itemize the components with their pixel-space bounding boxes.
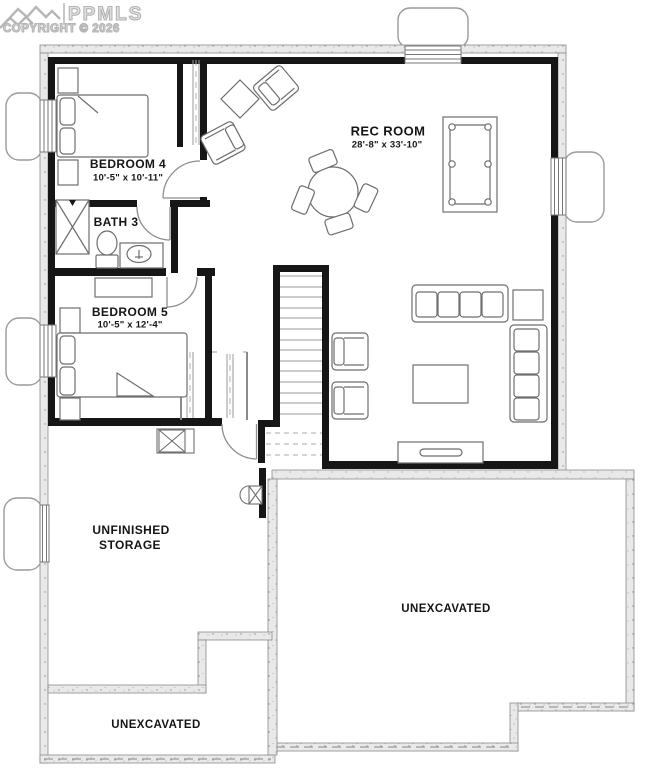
window-well — [398, 8, 468, 48]
window-well — [4, 498, 42, 570]
nightstand — [60, 398, 80, 420]
door-bedroom5 — [167, 277, 197, 308]
bedroom4-dims: 10'-5" x 10'-11" — [93, 173, 163, 184]
unexcavated-bottom-label: UNEXCAVATED — [111, 719, 200, 731]
bedroom5-label: BEDROOM 5 — [92, 305, 168, 319]
storage-label-line2: STORAGE — [99, 538, 161, 552]
side-table — [513, 290, 543, 320]
watermark-copyright: COPYRIGHT © 2026 — [3, 23, 120, 35]
shower — [56, 200, 89, 254]
unexcavated-right-label: UNEXCAVATED — [401, 603, 490, 615]
media-console — [398, 442, 483, 463]
floor-plan-page: PPMLS COPYRIGHT © 2026 BEDROOM 4 10'-5" … — [0, 0, 645, 768]
side-table-diamond — [221, 80, 259, 118]
toilet — [96, 231, 118, 268]
window-recroom-right — [551, 158, 566, 215]
closet-bedroom4 — [193, 60, 199, 145]
sofa — [412, 285, 508, 322]
corner-armchair — [252, 64, 300, 112]
chair — [291, 185, 316, 215]
bath3-label: BATH 3 — [94, 215, 139, 229]
pillow — [60, 128, 75, 154]
door-bath3 — [137, 207, 170, 240]
pillow — [60, 98, 75, 125]
bedroom4-label: BEDROOM 4 — [90, 157, 166, 171]
window-well — [6, 93, 42, 160]
door-bedroom4 — [163, 161, 200, 198]
bath-fixtures — [56, 200, 163, 268]
nightstand — [58, 68, 78, 93]
storage-label-line1: UNFINISHED — [92, 523, 169, 537]
coffee-table — [413, 365, 468, 403]
window-storage — [40, 505, 49, 562]
pillow — [60, 336, 75, 364]
pillow — [60, 367, 75, 395]
window-bedroom5 — [40, 325, 56, 377]
game-table-set — [291, 149, 379, 236]
window-well — [6, 318, 42, 385]
bedroom5-dims: 10'-5" x 12'-4" — [97, 320, 162, 331]
floor-plan-drawing — [0, 0, 645, 768]
round-table — [308, 167, 358, 217]
window-wells — [4, 8, 604, 570]
nightstand — [60, 308, 80, 333]
window-recroom-top — [405, 46, 461, 63]
sofa — [510, 325, 547, 422]
closet-hall — [212, 352, 247, 420]
door-storage — [222, 424, 257, 459]
furnace — [157, 429, 194, 453]
sink-vanity — [120, 243, 163, 268]
utility-fixtures — [157, 429, 262, 504]
dresser — [95, 278, 152, 297]
armchair — [332, 382, 368, 419]
window-well — [564, 152, 604, 222]
nightstand — [58, 160, 78, 185]
pool-table — [443, 117, 497, 212]
sump-pit — [240, 486, 262, 504]
recroom-dims: 28'-8" x 33'-10" — [352, 140, 423, 151]
window-bedroom4 — [40, 100, 56, 152]
recroom-label: REC ROOM — [351, 124, 426, 139]
armchair — [332, 333, 368, 370]
